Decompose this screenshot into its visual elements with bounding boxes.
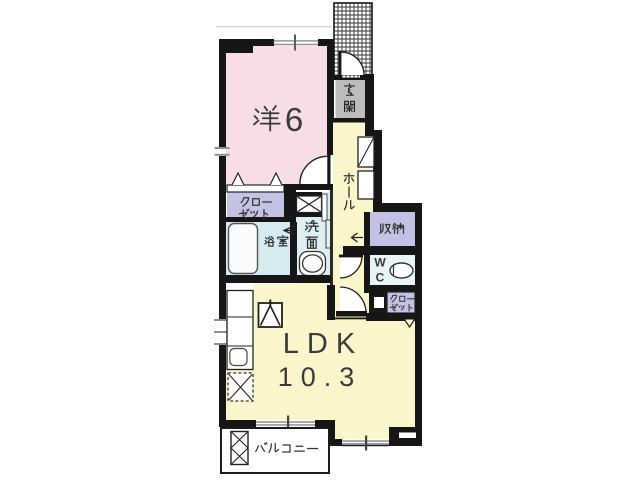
svg-text:W: W — [374, 256, 386, 270]
svg-text:10.3: 10.3 — [278, 362, 363, 392]
svg-text:C: C — [376, 271, 385, 285]
svg-text:6: 6 — [285, 101, 303, 138]
svg-text:LDK: LDK — [283, 328, 363, 360]
